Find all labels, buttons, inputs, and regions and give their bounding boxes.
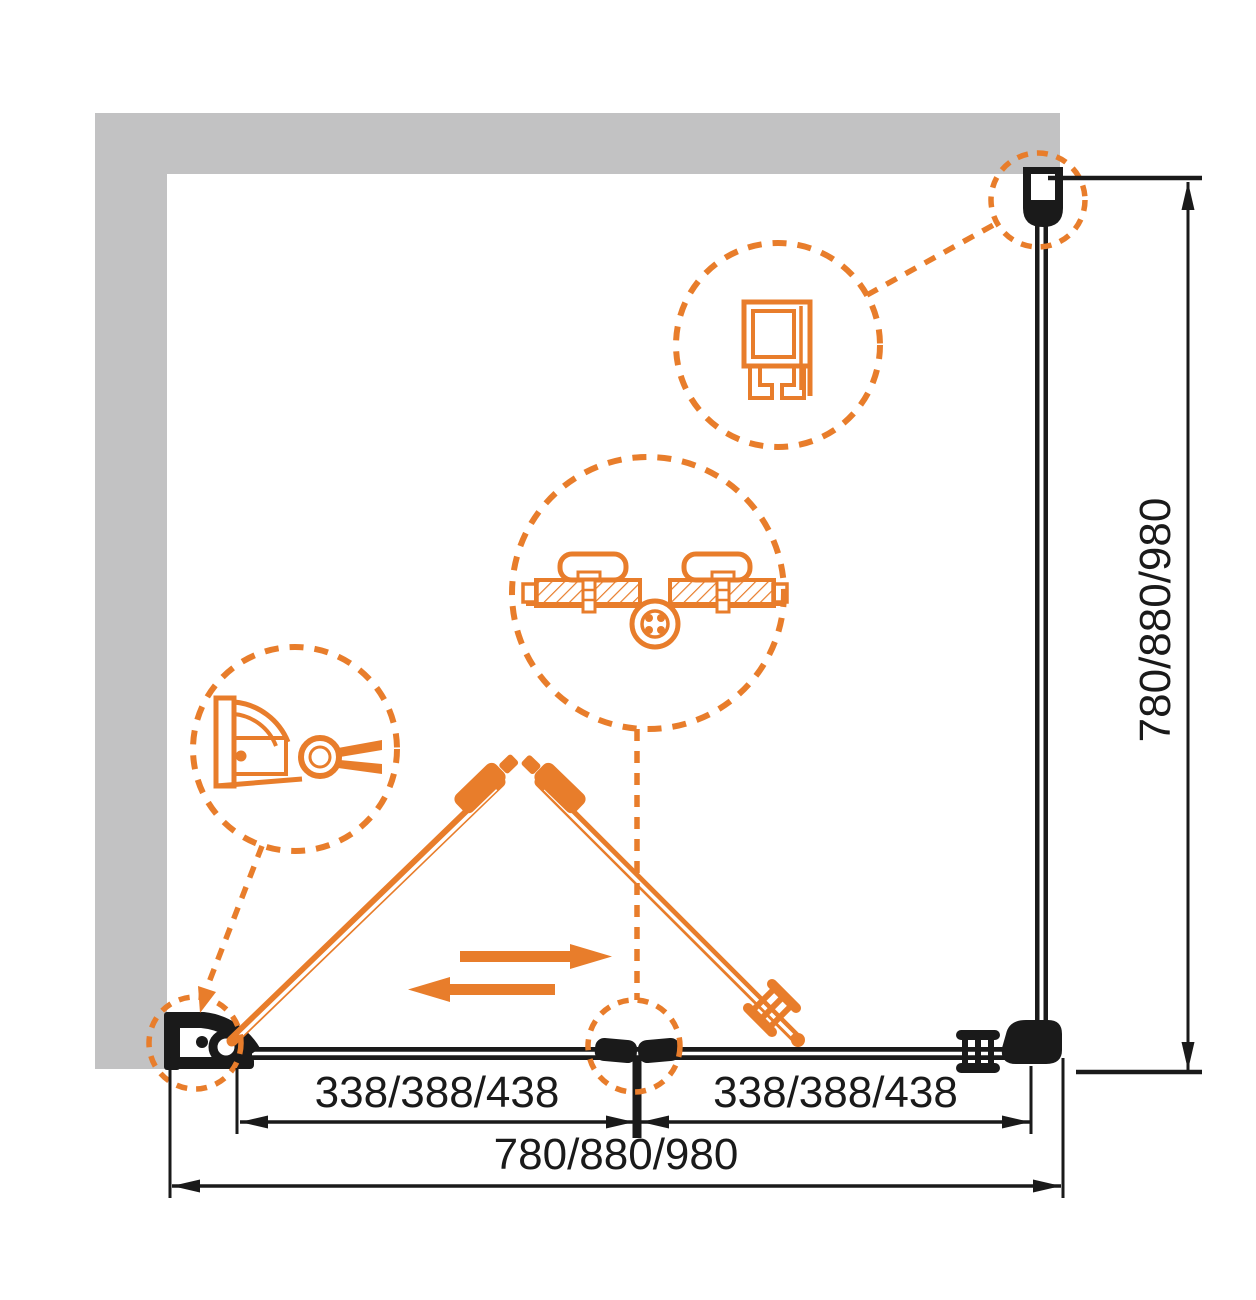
dimension-label-segment-right: 338/388/438 <box>638 1070 1033 1116</box>
callout-circles <box>149 153 1085 1092</box>
dimension-label-overall-width: 780/880/980 <box>416 1132 816 1178</box>
rail-clamp-fitting <box>956 1030 1000 1073</box>
callout-circle-top <box>676 243 880 447</box>
corner-connector-bottom-right <box>1002 1020 1062 1064</box>
diagram-canvas: 338/388/438 338/388/438 780/880/980 780/… <box>0 0 1256 1300</box>
dimension-label-side-height: 780/880/980 <box>1133 420 1179 820</box>
bifold-door-right <box>540 782 805 1047</box>
dimension-label-segment-left: 338/388/438 <box>237 1070 637 1116</box>
pivot-detail <box>216 698 382 786</box>
leader-arrowhead <box>198 986 216 1013</box>
wall-profile-detail <box>744 302 810 398</box>
slide-right-arrow <box>460 944 612 969</box>
slide-left-arrow <box>408 977 555 1002</box>
apex-hinge <box>452 753 589 816</box>
hinge-detail <box>523 554 787 647</box>
